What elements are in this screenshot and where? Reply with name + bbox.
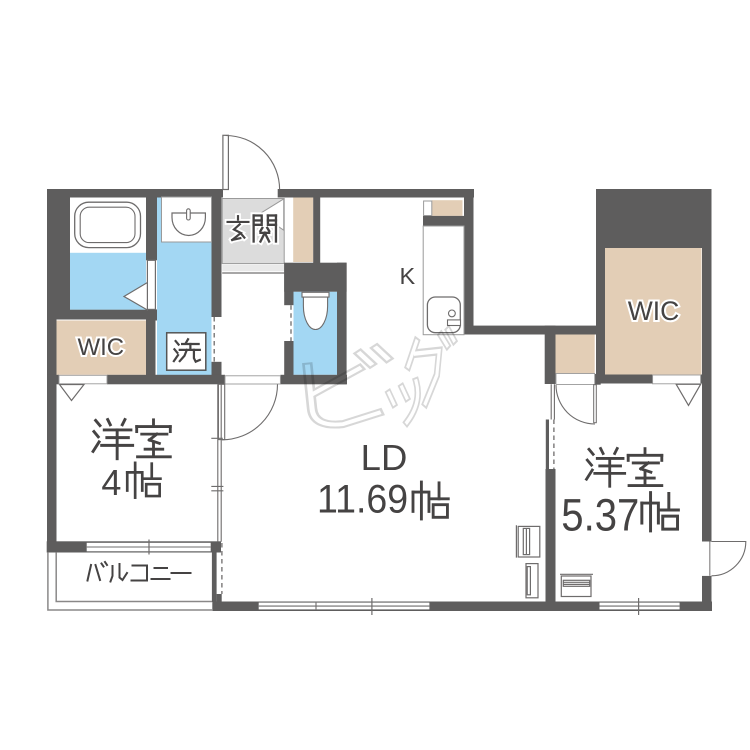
svg-text:K: K [400,263,416,289]
svg-text:5.37: 5.37 [561,490,639,541]
svg-text:4: 4 [101,462,121,503]
svg-text:11.69: 11.69 [317,478,408,522]
svg-text:WIC: WIC [77,334,124,361]
svg-text:WIC: WIC [628,296,680,326]
